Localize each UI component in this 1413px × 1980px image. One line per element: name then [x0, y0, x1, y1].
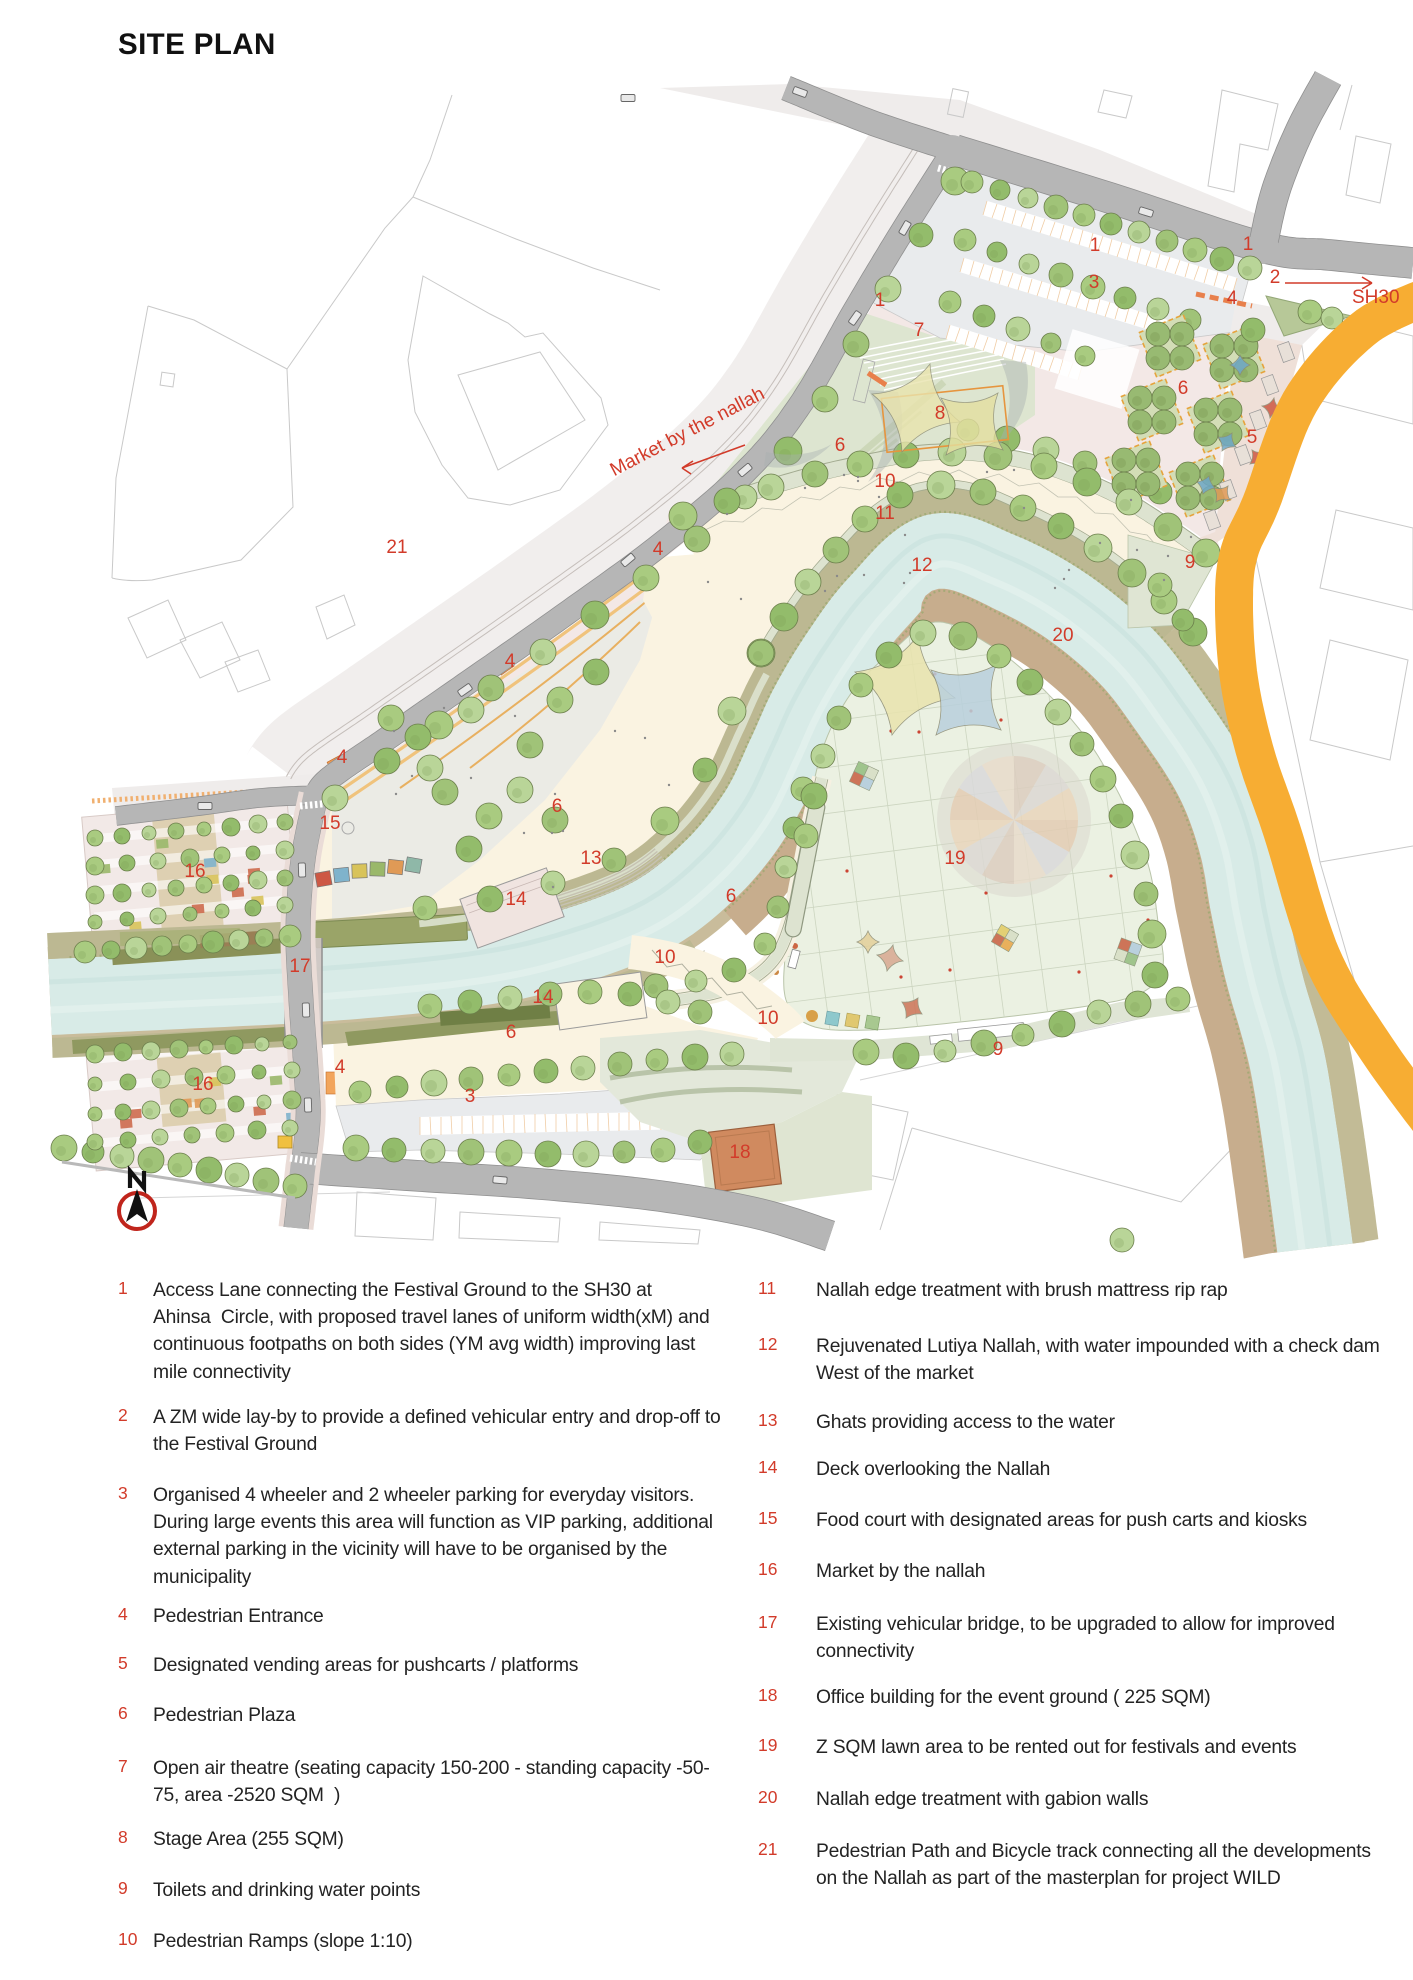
svg-text:20: 20	[1052, 625, 1073, 646]
svg-text:10: 10	[874, 471, 895, 492]
svg-text:15: 15	[319, 813, 340, 834]
svg-text:4: 4	[1227, 288, 1238, 309]
svg-text:SH30: SH30	[1352, 287, 1400, 308]
svg-text:4: 4	[337, 747, 348, 768]
svg-text:14: 14	[532, 987, 554, 1008]
svg-text:10: 10	[654, 947, 675, 968]
svg-text:21: 21	[386, 537, 407, 558]
svg-text:9: 9	[993, 1039, 1004, 1060]
svg-text:4: 4	[653, 539, 664, 560]
svg-text:6: 6	[552, 796, 563, 817]
svg-text:16: 16	[184, 861, 205, 882]
svg-text:19: 19	[944, 848, 965, 869]
svg-text:16: 16	[192, 1074, 213, 1095]
svg-text:6: 6	[1178, 378, 1189, 399]
svg-text:1: 1	[875, 290, 886, 311]
svg-text:1: 1	[1090, 235, 1101, 256]
svg-text:4: 4	[335, 1057, 346, 1078]
svg-text:1: 1	[1243, 234, 1254, 255]
svg-text:10: 10	[757, 1008, 778, 1029]
svg-text:3: 3	[465, 1086, 476, 1107]
svg-text:6: 6	[726, 886, 737, 907]
svg-text:2: 2	[1270, 267, 1281, 288]
svg-text:4: 4	[505, 651, 516, 672]
svg-text:5: 5	[1247, 427, 1258, 448]
svg-text:8: 8	[935, 403, 946, 424]
svg-text:6: 6	[835, 435, 846, 456]
svg-text:17: 17	[289, 956, 310, 977]
svg-text:6: 6	[506, 1022, 517, 1043]
svg-text:11: 11	[875, 503, 895, 524]
svg-text:3: 3	[1089, 272, 1100, 293]
svg-text:9: 9	[1185, 552, 1196, 573]
svg-text:18: 18	[729, 1142, 750, 1163]
svg-text:7: 7	[914, 320, 925, 341]
svg-text:12: 12	[911, 555, 932, 576]
svg-text:13: 13	[580, 848, 601, 869]
svg-text:14: 14	[505, 889, 527, 910]
